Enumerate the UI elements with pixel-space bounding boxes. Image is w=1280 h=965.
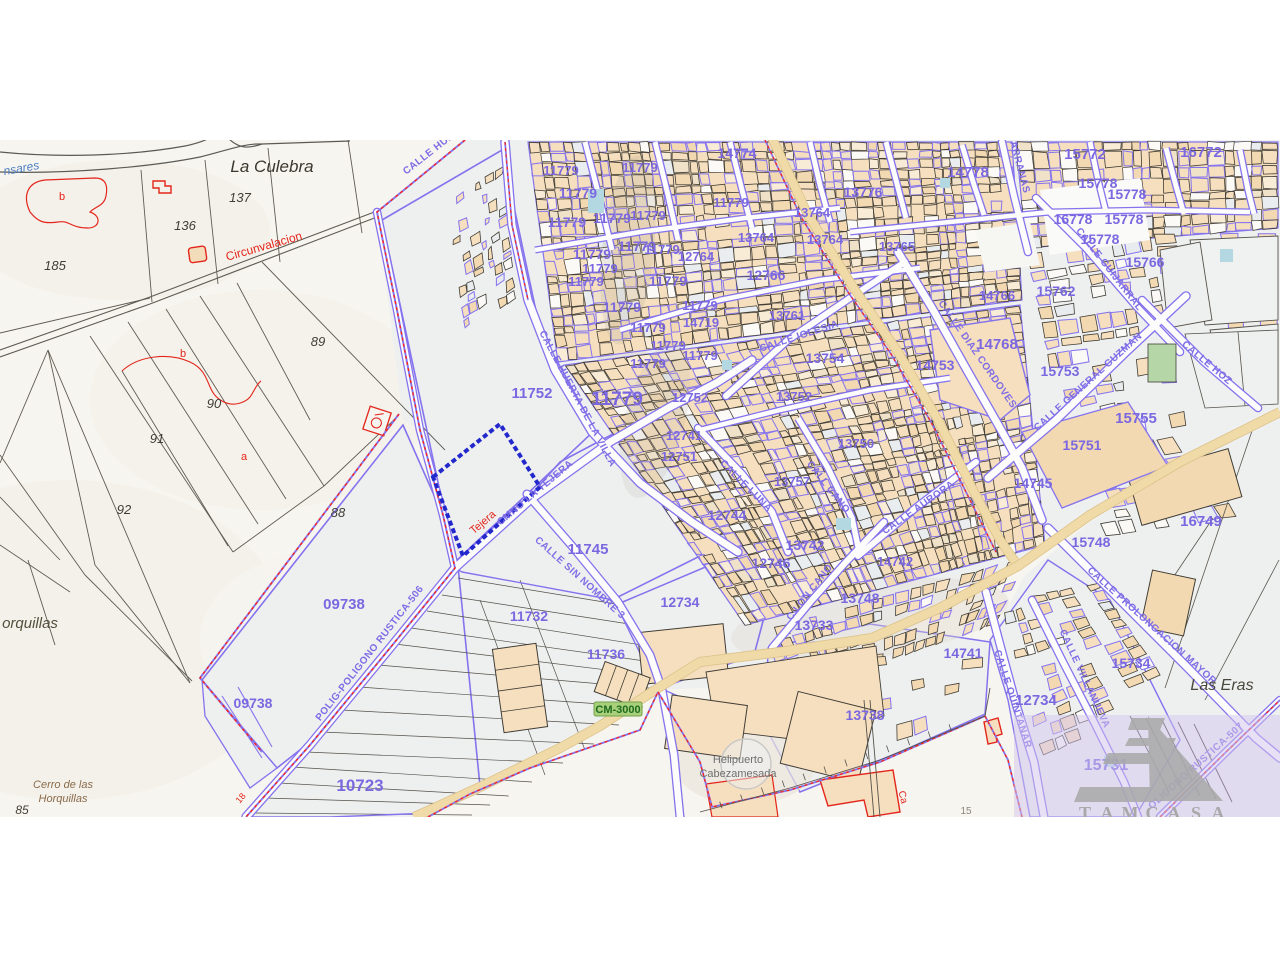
svg-text:11779: 11779	[543, 163, 578, 178]
svg-text:11736: 11736	[587, 646, 625, 662]
svg-text:13765: 13765	[879, 239, 915, 254]
svg-text:15762: 15762	[1037, 283, 1076, 299]
svg-text:137: 137	[229, 190, 251, 205]
svg-text:Horquillas: Horquillas	[39, 793, 88, 805]
svg-text:15778: 15778	[1105, 211, 1144, 227]
svg-text:11779: 11779	[650, 338, 685, 353]
svg-text:13776: 13776	[844, 184, 883, 200]
svg-text:11779: 11779	[568, 274, 603, 289]
svg-text:b: b	[180, 348, 186, 360]
svg-text:15766: 15766	[1126, 254, 1165, 270]
svg-text:14774: 14774	[718, 145, 757, 161]
svg-text:13750: 13750	[838, 436, 874, 451]
svg-text:Las Eras: Las Eras	[1190, 677, 1253, 694]
svg-text:13761: 13761	[769, 308, 805, 323]
svg-text:11779: 11779	[682, 348, 717, 363]
svg-text:15755: 15755	[1115, 410, 1157, 427]
svg-text:11779: 11779	[630, 356, 665, 371]
svg-text:15: 15	[960, 806, 972, 817]
svg-text:12764: 12764	[678, 249, 715, 264]
svg-text:11779: 11779	[593, 210, 631, 226]
svg-text:136: 136	[174, 218, 196, 233]
svg-text:11779: 11779	[649, 273, 687, 289]
svg-text:92: 92	[117, 502, 132, 517]
svg-text:13764: 13764	[738, 230, 775, 245]
svg-text:12746: 12746	[752, 555, 791, 571]
svg-text:13764: 13764	[807, 232, 844, 247]
svg-text:15748: 15748	[1072, 534, 1111, 550]
svg-text:89: 89	[311, 334, 325, 349]
svg-text:11779: 11779	[630, 320, 665, 335]
svg-text:16778: 16778	[1054, 211, 1093, 227]
svg-text:09738: 09738	[323, 596, 365, 613]
svg-text:13733: 13733	[795, 617, 834, 633]
svg-text:90: 90	[207, 396, 222, 411]
svg-text:11779: 11779	[603, 299, 641, 315]
svg-text:15734: 15734	[1112, 655, 1151, 671]
svg-text:13764: 13764	[794, 205, 831, 220]
svg-text:11779: 11779	[682, 298, 717, 313]
svg-text:11779: 11779	[559, 185, 597, 201]
svg-text:13754: 13754	[806, 350, 845, 366]
svg-text:13738: 13738	[846, 707, 885, 723]
svg-text:15772: 15772	[1064, 146, 1106, 163]
svg-text:Cerro de las: Cerro de las	[33, 779, 93, 791]
svg-text:13748: 13748	[841, 590, 880, 606]
svg-text:11779: 11779	[622, 160, 657, 175]
svg-text:16749: 16749	[1180, 513, 1222, 530]
svg-text:15778: 15778	[1108, 186, 1147, 202]
svg-text:14745: 14745	[1014, 475, 1053, 491]
svg-text:15751: 15751	[1063, 437, 1102, 453]
svg-text:14742: 14742	[877, 554, 913, 569]
svg-text:12752: 12752	[672, 390, 708, 405]
svg-text:11779: 11779	[644, 242, 679, 257]
svg-text:11779: 11779	[573, 246, 611, 262]
svg-text:Cabezamesada: Cabezamesada	[699, 768, 777, 780]
svg-text:11745: 11745	[568, 541, 609, 558]
svg-text:11752: 11752	[512, 385, 553, 402]
svg-text:12744: 12744	[708, 507, 747, 523]
svg-text:09738: 09738	[234, 695, 273, 711]
svg-text:15753: 15753	[1041, 363, 1080, 379]
svg-text:La Culebra: La Culebra	[230, 157, 313, 176]
svg-text:13742: 13742	[786, 537, 825, 553]
svg-text:b: b	[59, 191, 65, 203]
svg-text:14753: 14753	[916, 357, 955, 373]
svg-text:13757: 13757	[774, 474, 810, 489]
svg-text:12766: 12766	[747, 267, 786, 283]
svg-text:14766: 14766	[979, 288, 1015, 303]
svg-text:14741: 14741	[944, 645, 983, 661]
svg-text:10723: 10723	[336, 776, 383, 795]
svg-text:16772: 16772	[1180, 144, 1222, 161]
svg-text:CM-3000: CM-3000	[595, 704, 640, 716]
svg-text:12734: 12734	[661, 594, 700, 610]
svg-text:14719: 14719	[683, 315, 719, 330]
svg-text:11779: 11779	[548, 214, 586, 230]
svg-text:14778: 14778	[947, 164, 989, 181]
svg-text:13752: 13752	[776, 389, 812, 404]
svg-text:11732: 11732	[510, 608, 548, 624]
svg-text:91: 91	[150, 431, 164, 446]
svg-text:88: 88	[331, 505, 346, 520]
svg-text:185: 185	[44, 258, 66, 273]
svg-text:11779: 11779	[630, 208, 665, 223]
svg-text:12741: 12741	[666, 428, 702, 443]
svg-text:85: 85	[15, 803, 29, 817]
svg-text:12751: 12751	[661, 449, 697, 464]
svg-text:14768: 14768	[976, 336, 1018, 353]
svg-text:11779: 11779	[591, 389, 643, 410]
svg-text:a: a	[241, 451, 248, 463]
svg-text:orquillas: orquillas	[2, 615, 58, 632]
svg-text:11779: 11779	[713, 195, 748, 210]
svg-text:Helipuerto: Helipuerto	[713, 754, 763, 766]
